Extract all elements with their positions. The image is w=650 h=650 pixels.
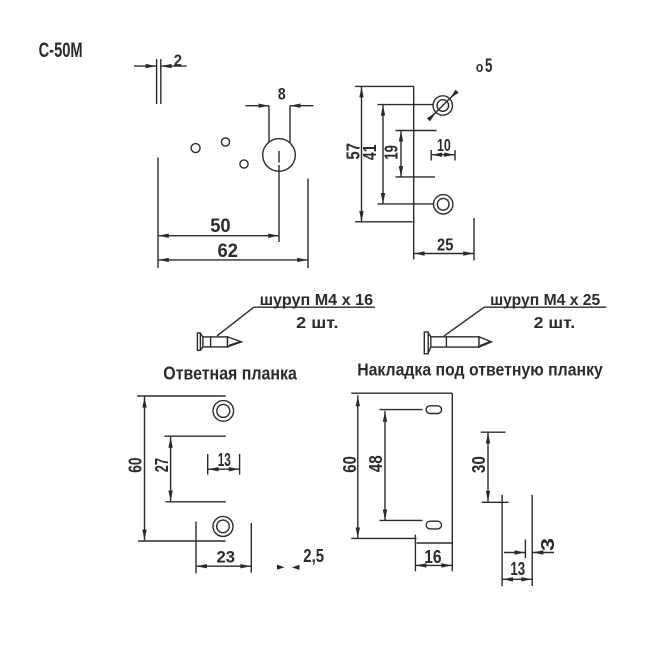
svg-text:50: 50 — [210, 216, 230, 237]
svg-text:шуруп М4 х 25: шуруп М4 х 25 — [490, 292, 600, 309]
svg-text:27: 27 — [152, 458, 172, 472]
svg-text:Ответная планка: Ответная планка — [163, 363, 297, 384]
svg-text:60: 60 — [340, 456, 360, 473]
svg-text:25: 25 — [437, 235, 454, 255]
svg-text:8: 8 — [278, 84, 286, 103]
svg-text:16: 16 — [424, 547, 441, 567]
svg-text:13: 13 — [218, 450, 231, 470]
svg-text:2 шт.: 2 шт. — [534, 315, 576, 332]
svg-text:48: 48 — [366, 455, 386, 472]
svg-text:2 шт.: 2 шт. — [296, 315, 338, 332]
svg-text:10: 10 — [437, 135, 451, 155]
svg-text:3: 3 — [538, 538, 558, 551]
svg-text:41: 41 — [360, 144, 380, 160]
svg-text:С-50М: С-50М — [39, 39, 83, 62]
svg-text:5: 5 — [485, 55, 492, 77]
svg-text:о: о — [476, 59, 483, 76]
svg-text:шуруп М4 х 16: шуруп М4 х 16 — [260, 292, 374, 309]
svg-text:62: 62 — [218, 241, 238, 262]
svg-text:13: 13 — [510, 559, 525, 579]
svg-text:2: 2 — [174, 51, 182, 70]
svg-text:23: 23 — [217, 547, 236, 566]
svg-text:2,5: 2,5 — [303, 546, 324, 566]
svg-text:19: 19 — [382, 145, 402, 160]
svg-text:Накладка под ответную планку: Накладка под ответную планку — [357, 360, 603, 380]
svg-text:60: 60 — [126, 458, 146, 473]
svg-text:30: 30 — [469, 456, 489, 473]
